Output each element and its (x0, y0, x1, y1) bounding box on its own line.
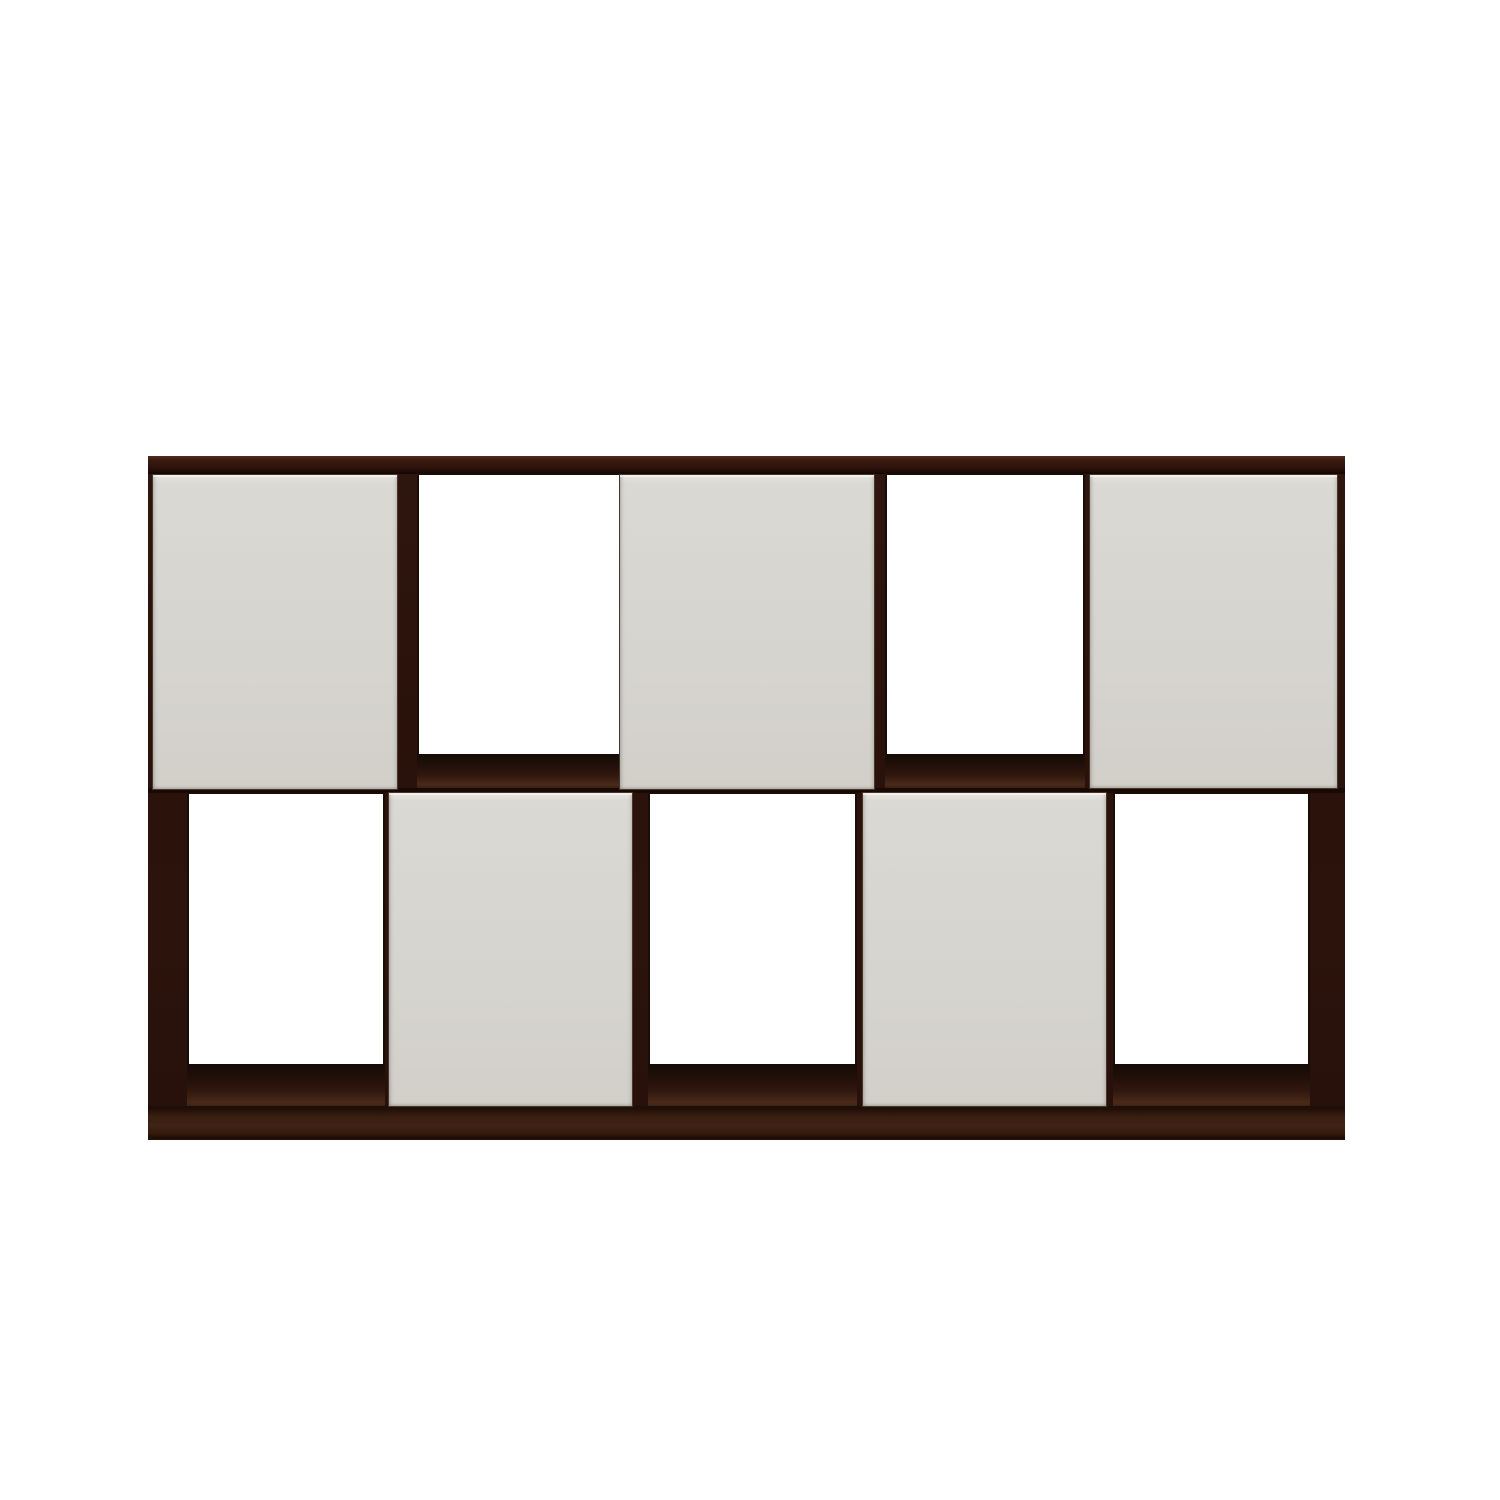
product-photo-canvas (0, 0, 1500, 1500)
door-top-5 (1089, 474, 1338, 789)
open-cubby-top-4 (885, 473, 1085, 756)
cubby-floor-bottom-3 (648, 1064, 857, 1108)
cubby-floor-top-2 (417, 754, 621, 789)
cubby-floor-bottom-5 (1113, 1064, 1310, 1108)
cubby-floor-bottom-1 (187, 1064, 385, 1108)
bottom-panel-edge (148, 1106, 1345, 1140)
open-cubby-bottom-1 (187, 792, 385, 1066)
open-cubby-bottom-3 (648, 792, 857, 1066)
door-bottom-2 (388, 792, 633, 1107)
door-bottom-4 (862, 792, 1107, 1107)
door-top-1 (152, 474, 398, 790)
open-cubby-top-2 (417, 473, 621, 756)
cubby-floor-top-4 (885, 754, 1085, 789)
top-panel-edge (148, 456, 1345, 474)
door-top-3 (619, 474, 875, 790)
open-cubby-bottom-5 (1113, 792, 1310, 1066)
